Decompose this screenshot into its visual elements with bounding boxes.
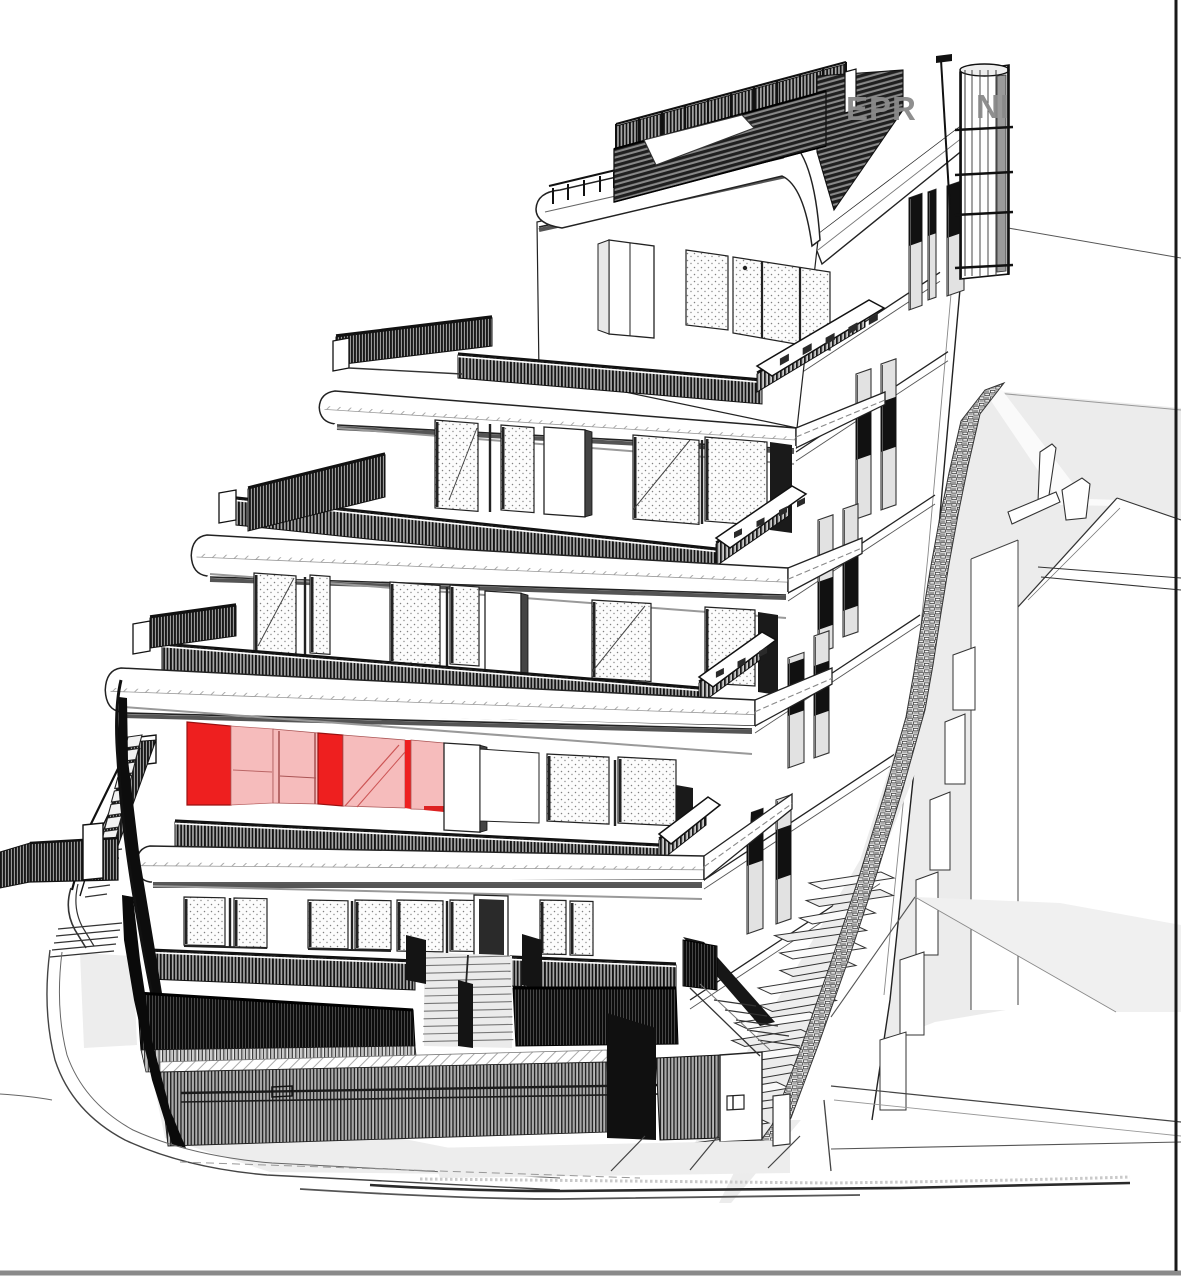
svg-text:EPR: EPR xyxy=(846,90,917,127)
svg-text:NI: NI xyxy=(976,88,1009,125)
